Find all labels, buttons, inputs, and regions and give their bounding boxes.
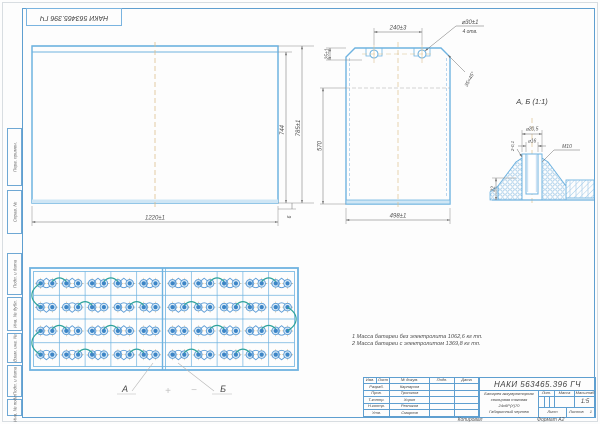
title-block-cell — [455, 391, 479, 398]
margin-box-2: Подп. и дата — [7, 253, 22, 295]
title-block-cell — [455, 397, 479, 404]
title-block-cell — [455, 410, 479, 417]
title-block-cell — [430, 404, 455, 411]
sheets-cell: Листов 1 — [566, 408, 595, 417]
margin-box-5: Подп. и дата — [7, 365, 22, 397]
title-block-cell — [430, 410, 455, 417]
dim-inner-diameter-label: ⌀16 — [528, 139, 537, 145]
sheets-value: 1 — [590, 410, 592, 415]
drawing-sheet: НАКИ 563465.396 ГЧ 1220±1 — [0, 0, 600, 424]
dim-top-offset-label: 25±1 — [325, 48, 331, 60]
title-block-cell: Смирнов — [390, 410, 430, 417]
title-block-cell: Карнаухов — [390, 384, 430, 391]
rotated-designation-text: НАКИ 563465.396 ГЧ — [40, 14, 108, 21]
margin-label: Подп. и дата — [12, 367, 17, 395]
title-block-cell: Утв. — [364, 410, 390, 417]
top-view: +−+−+−+−+−+−+−+−+−+−−+−+−+−+−+−+−+−+−+−+… — [22, 262, 322, 412]
sheet-label: Лист — [538, 408, 566, 417]
format-label: Формат А2 — [537, 417, 564, 423]
dim-hole-spacing-label: 240±3 — [389, 26, 407, 32]
title-block-cell: Пров. — [364, 391, 390, 398]
margin-label: Взам. инв. № — [12, 334, 17, 362]
title-block-cell: Разраб. — [364, 384, 390, 391]
title-block-cell — [430, 391, 455, 398]
terminal-label-b: Б — [220, 384, 226, 394]
dim-thread-label: M10 — [562, 144, 572, 150]
margin-box-0: Перв. примен. — [7, 128, 22, 186]
title-block-name: Батарея аккумуляторная свинцовая тяговая… — [479, 391, 538, 417]
title-block-cell — [430, 397, 455, 404]
hole-count-callout: 4 отв. — [462, 29, 477, 35]
title-block-cell — [430, 384, 455, 391]
notes: 1 Масса батареи без электролита 1062,6 к… — [352, 334, 542, 348]
terminal-label-a: А — [121, 384, 128, 394]
polarity-plus: + — [165, 386, 171, 397]
dim-bottom-label: 6 — [287, 215, 293, 218]
title-block-cell — [455, 384, 479, 391]
title-block-cell: Тропилов — [390, 391, 430, 398]
margin-label: Подп. и дата — [12, 260, 17, 288]
margin-label: Инв. № дубл. — [12, 300, 17, 328]
margin-label: Перв. примен. — [12, 142, 17, 172]
hole-diameter-callout: ⌀30±1 — [462, 20, 479, 26]
mass-cell — [554, 397, 574, 408]
lit-cell — [538, 397, 554, 408]
margin-label: Инв. № подл. — [12, 394, 17, 422]
side-view: 240±3 ⌀30±1 4 отв. 25±1 570 35×45° 498±1 — [318, 12, 490, 234]
note-1: 1 Масса батареи без электролита 1062,6 к… — [352, 334, 542, 341]
rotated-designation-stamp: НАКИ 563465.396 ГЧ — [26, 8, 122, 26]
dim-outer-diameter-label: ⌀20,5 — [526, 127, 539, 133]
margin-box-6: Инв. № подл. — [7, 399, 22, 416]
dim-height-label: 785±1 — [296, 120, 302, 137]
margin-label: Справ. № — [12, 202, 17, 222]
dim-inner-height-label: 744 — [280, 124, 286, 135]
title-block-cell: Хорин — [390, 397, 430, 404]
detail-view: А, Б (1:1) ⌀20,5 ⌀16 M10 22 2-0,1 — [470, 92, 600, 214]
margin-box-4: Взам. инв. № — [7, 333, 22, 363]
front-view: 1220±1 744 785±1 6 — [24, 28, 320, 242]
dim-width-label: 1220±1 — [145, 216, 165, 222]
dim-terminal-height-label: 22 — [491, 186, 497, 193]
margin-box-1: Справ. № — [7, 190, 22, 234]
detail-title: А, Б (1:1) — [515, 97, 548, 106]
title-block-designation: НАКИ 563465.396 ГЧ — [479, 378, 595, 391]
title-block-cell: Т.контр. — [364, 397, 390, 404]
sheets-label: Листов — [569, 410, 584, 415]
copied-label: Копировал — [420, 417, 520, 423]
polarity-minus: − — [191, 385, 197, 396]
title-block-cell — [455, 404, 479, 411]
dim-side-width-label: 498±1 — [390, 214, 407, 220]
title-block-cell: Н.контр. — [364, 404, 390, 411]
dim-depth-label: 2-0,1 — [510, 140, 515, 152]
dim-chamfer-label: 35×45° — [464, 71, 477, 88]
name-line-4: Габаритный чертеж — [480, 409, 538, 415]
title-block: НАКИ 563465.396 ГЧ Батарея аккумуляторна… — [363, 377, 596, 418]
dim-inner-label: 570 — [318, 140, 324, 151]
margin-box-3: Инв. № дубл. — [7, 297, 22, 331]
note-2: 2 Масса батареи с электролитом 1369,8 кг… — [352, 341, 542, 348]
scale-value: 1:5 — [574, 397, 595, 408]
title-block-cell: Резников — [390, 404, 430, 411]
